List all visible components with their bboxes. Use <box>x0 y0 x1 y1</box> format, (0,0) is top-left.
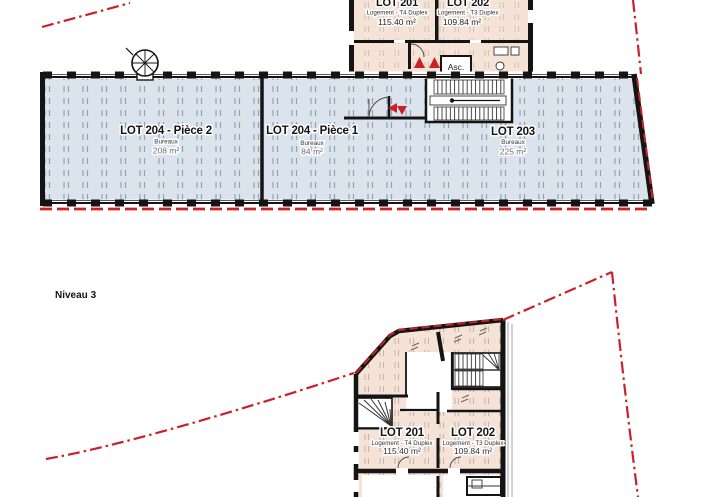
lot201-area: 115.40 m² <box>383 446 421 456</box>
lot202-name: LOT 202 <box>451 427 495 439</box>
floor-plan-drawing: Asc. LOT 201 Logement - T4 Duplex 115.40… <box>0 0 706 497</box>
lot203-type: Bureaux <box>501 139 525 146</box>
duplex-block: Asc. LOT 201 Logement - T4 Duplex 115.40… <box>349 0 533 78</box>
lot201-area: 115.40 m² <box>378 17 416 27</box>
lot203-name: LOT 203 <box>491 126 535 138</box>
lot204-piece2-type: Bureaux <box>154 139 178 146</box>
fixtures <box>467 477 501 495</box>
staircase <box>426 76 512 122</box>
upper-floor-plan: Asc. LOT 201 Logement - T4 Duplex 115.40… <box>40 0 653 209</box>
elevator-label: Asc. <box>448 62 465 72</box>
lot203-area: 225 m² <box>500 147 527 157</box>
lot202-type: Logement - T3 Duplex <box>437 10 499 17</box>
lot202-name: LOT 202 <box>447 0 489 9</box>
lot204-piece2-name: LOT 204 - Pièce 2 <box>120 125 212 137</box>
office-block: LOT 204 - Pièce 2 Bureaux 208 m² LOT 204… <box>40 48 653 209</box>
winder-staircase <box>357 398 392 428</box>
lot201-type: Logement - T4 Duplex <box>366 10 428 17</box>
level-label: Niveau 3 <box>55 290 97 301</box>
lower-floor-plan: LOT 201 Logement - T4 Duplex 115.40 m² L… <box>353 319 512 497</box>
lot202-area: 109.84 m² <box>443 17 481 27</box>
lot204-piece1-name: LOT 204 - Pièce 1 <box>266 125 359 137</box>
u-staircase <box>453 353 501 387</box>
lot202-area: 109.84 m² <box>454 446 492 456</box>
floor-plan-sheet: Asc. LOT 201 Logement - T4 Duplex 115.40… <box>0 0 706 497</box>
lot201-name: LOT 201 <box>380 427 425 439</box>
lot201-name: LOT 201 <box>376 0 418 9</box>
lot204-piece2-area: 208 m² <box>153 146 180 156</box>
lot204-piece1-area: 84 m² <box>301 147 323 157</box>
adjacent-wall-lines <box>508 322 512 497</box>
